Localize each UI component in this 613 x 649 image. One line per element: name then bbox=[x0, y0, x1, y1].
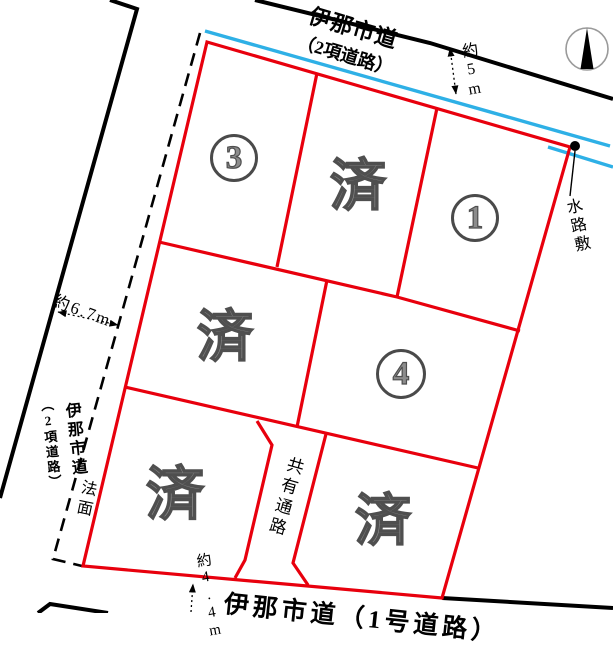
divider-lot4-left bbox=[297, 280, 327, 427]
measure-arrow-bottom-road bbox=[191, 584, 193, 612]
lot-3-number: 3 bbox=[210, 134, 258, 182]
sold-mark-middle: 済 bbox=[190, 302, 260, 362]
lot-1-number: 1 bbox=[451, 194, 499, 242]
divider-sold-lot1 bbox=[397, 108, 437, 297]
shared-passage-left-edge bbox=[235, 421, 272, 578]
waterway-line-lower bbox=[548, 147, 613, 167]
sold-mark-bottom-left: 済 bbox=[140, 459, 210, 519]
sold-mark-top: 済 bbox=[323, 151, 393, 211]
lot-4-number: 4 bbox=[376, 349, 426, 399]
waterway-point-dot bbox=[570, 141, 580, 151]
site-plan-page: { "plan": { "roads": { "top": { "name": … bbox=[0, 0, 613, 613]
north-arrow-icon bbox=[566, 28, 608, 70]
road-edge-bottom-left bbox=[38, 604, 108, 613]
divider-lot3-sold bbox=[277, 73, 317, 267]
waterway-leader-line bbox=[570, 151, 575, 196]
sold-mark-bottom-right: 済 bbox=[348, 486, 418, 546]
road-edge-bottom-right bbox=[442, 598, 613, 608]
